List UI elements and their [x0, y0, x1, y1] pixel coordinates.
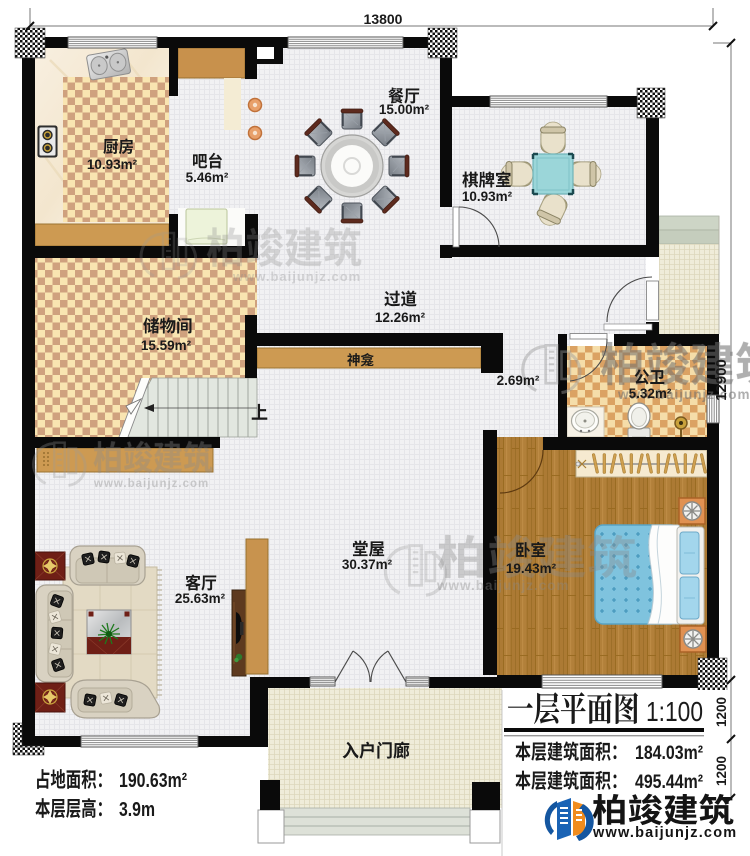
svg-text:www.baijunjz.com: www.baijunjz.com [93, 478, 209, 490]
svg-text:12900: 12900 [713, 359, 730, 401]
svg-text:12.26m²: 12.26m² [375, 310, 426, 325]
svg-text:2.69m²: 2.69m² [497, 373, 540, 388]
svg-text:1200: 1200 [714, 697, 729, 727]
svg-text:495.44m²: 495.44m² [635, 772, 703, 793]
svg-text:25.63m²: 25.63m² [175, 591, 226, 606]
svg-text:5.46m²: 5.46m² [186, 170, 229, 185]
svg-text:1:100: 1:100 [646, 696, 703, 727]
svg-text:190.63m²: 190.63m² [119, 770, 187, 792]
svg-text:1200: 1200 [714, 756, 729, 786]
svg-text:5.32m²: 5.32m² [629, 386, 672, 401]
svg-text:30.37m²: 30.37m² [342, 557, 393, 572]
svg-text:www.baijunjz.com: www.baijunjz.com [592, 825, 737, 841]
svg-text:19.43m²: 19.43m² [506, 561, 557, 576]
svg-text:3.9m: 3.9m [119, 799, 155, 821]
svg-text:184.03m²: 184.03m² [635, 743, 703, 764]
svg-text:13800: 13800 [364, 11, 403, 27]
svg-text:15.59m²: 15.59m² [141, 338, 192, 353]
svg-text:10.93m²: 10.93m² [462, 189, 513, 204]
svg-text:15.00m²: 15.00m² [379, 102, 430, 117]
svg-text:www.baijunjz.com: www.baijunjz.com [436, 578, 570, 593]
svg-text:www.baijunjz.com: www.baijunjz.com [232, 269, 361, 284]
svg-text:10.93m²: 10.93m² [87, 157, 138, 172]
